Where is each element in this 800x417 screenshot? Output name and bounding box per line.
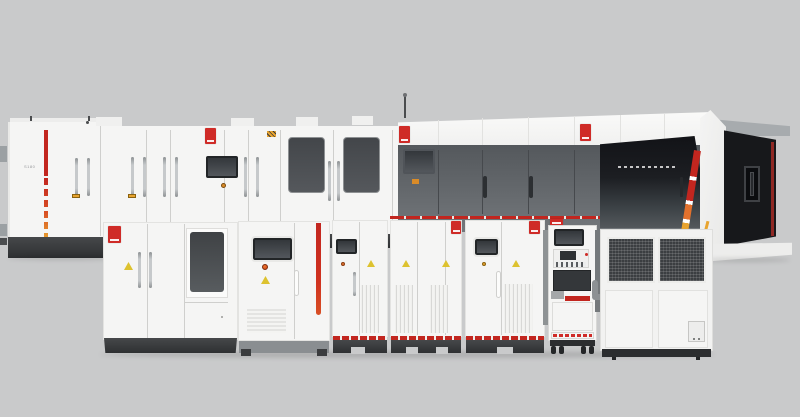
indicator-button [341, 262, 345, 266]
caster-wheel [551, 346, 556, 354]
side-red-glow [771, 142, 774, 236]
vent-grille [247, 309, 286, 333]
roof-vent-block [96, 117, 122, 126]
module-display [560, 251, 576, 260]
machine-top-band [398, 112, 712, 152]
door-gap [147, 224, 148, 338]
front-cabinet-vented-right [390, 220, 462, 360]
cabinet-base [104, 338, 237, 353]
door-handle [175, 157, 178, 197]
base-notch [497, 347, 513, 354]
roof-bolt [86, 121, 89, 124]
band-gap [482, 118, 483, 150]
panel-gap [224, 130, 225, 234]
brand-logo-badge [451, 221, 461, 234]
rack-base [550, 340, 595, 346]
rack-screen [554, 229, 584, 246]
brand-logo-badge [580, 124, 591, 141]
brand-badge-text [552, 222, 561, 224]
brand-stripe-solid [44, 130, 48, 176]
body-gap [438, 150, 439, 214]
vent-slats [361, 285, 379, 333]
door-handle [138, 252, 141, 288]
door-gap [417, 222, 418, 335]
door-handle [143, 157, 146, 197]
cabinet-base [239, 341, 329, 353]
panel-gap [280, 130, 281, 234]
control-screen [206, 156, 238, 178]
offscreen-equipment-fragment [0, 224, 7, 236]
vent-slats [395, 285, 413, 333]
brand-logo-badge [108, 226, 121, 243]
red-label-strip [565, 296, 590, 301]
vent-slats [430, 285, 448, 333]
roof-vent-block [296, 117, 318, 126]
rack-lower-door [552, 302, 593, 331]
cabinet-body [332, 220, 388, 337]
door-handle [256, 157, 259, 197]
door-handle [244, 157, 247, 197]
body-gap [482, 150, 483, 214]
hazard-label [267, 131, 276, 137]
door-gap [359, 222, 360, 335]
door-handle [353, 272, 356, 296]
brand-badge-text [110, 239, 119, 241]
cable-duct [551, 291, 564, 299]
panel-gap [170, 130, 171, 234]
module-red-button [585, 253, 588, 256]
door-handle [163, 157, 166, 197]
panel-gap [146, 130, 147, 234]
red-edge-stripe [316, 223, 321, 315]
rack-bottom-label-text [553, 334, 592, 337]
emergency-button [262, 264, 268, 270]
band-gap [528, 117, 529, 150]
glass-enclosure [600, 136, 710, 228]
roof-bolt [30, 116, 32, 121]
brand-badge-text [401, 139, 409, 141]
condenser-mesh-grille [607, 237, 655, 283]
signal-antenna [404, 96, 406, 118]
machine-roof [712, 110, 790, 136]
side-door-handle [750, 172, 754, 196]
brand-badge-text [582, 137, 590, 139]
machine-control-screen [403, 149, 435, 174]
access-box-dot [693, 338, 695, 340]
door-gap [333, 130, 334, 234]
panel-gap [392, 130, 393, 234]
door-handle [149, 252, 152, 288]
chiller-unit [600, 221, 713, 361]
indicator-button [221, 183, 226, 188]
door-handle [75, 158, 78, 196]
door-gap [184, 224, 185, 338]
hmi-screen [253, 238, 292, 260]
chiller-base [602, 349, 711, 357]
machine-door-handle [483, 176, 487, 198]
amber-label [412, 179, 419, 184]
door-window [343, 137, 380, 193]
base-bolt [612, 357, 616, 360]
offscreen-equipment-fragment [0, 238, 7, 245]
lock-dot [221, 316, 223, 318]
body-gap [574, 150, 575, 214]
door-handle [337, 161, 340, 201]
roof-vent-block [352, 116, 373, 125]
panel-gap [248, 130, 249, 234]
base-notch [351, 347, 365, 354]
inspection-window-glass [190, 232, 224, 292]
access-box [688, 321, 705, 342]
inner-door-handle [680, 177, 683, 197]
side-door-handle-recess [744, 166, 760, 202]
brand-badge-text [453, 230, 460, 232]
vent-slats [504, 284, 533, 333]
caster-wheel [589, 346, 594, 354]
handle-lock-clip [128, 194, 136, 198]
brand-stripe-dashed [44, 178, 48, 240]
condenser-mesh-grille [658, 237, 706, 283]
door-handle [87, 158, 90, 196]
offscreen-equipment-fragment [0, 146, 7, 162]
front-cabinet-vented-small [465, 218, 545, 360]
hmi-screen [336, 239, 357, 254]
floor-shadow [702, 258, 790, 262]
machine-door-handle [529, 176, 533, 198]
body-gap [528, 150, 529, 214]
brand-badge-text [207, 140, 215, 142]
rear-cabinet-row [122, 112, 398, 236]
model-label: S180 [24, 164, 42, 170]
access-box-dot [698, 338, 700, 340]
caster-wheel [581, 346, 586, 354]
connector-row [556, 262, 586, 267]
front-cabinet-control [238, 221, 330, 358]
hmi-screen [475, 239, 498, 255]
antenna-tip [403, 93, 407, 97]
door-gap [100, 126, 101, 236]
door-window [288, 137, 325, 193]
brand-logo-badge [399, 126, 410, 143]
handle-lock-clip [72, 194, 80, 198]
panel-gap [185, 302, 228, 303]
glass-micro-text [618, 166, 678, 168]
door-handle [131, 157, 134, 197]
machine-dark-side-panel [724, 128, 776, 246]
front-cabinet-window [103, 222, 238, 355]
front-cabinet-vented-left [332, 220, 388, 360]
base-notch [436, 347, 448, 354]
base-foot [317, 349, 327, 356]
band-gap [438, 120, 439, 150]
brand-logo-badge [205, 128, 216, 144]
chiller-lower-panel [605, 290, 653, 348]
door-handle [294, 270, 299, 296]
cabinet-body [8, 122, 122, 237]
indicator-button [482, 262, 486, 266]
band-gap [620, 115, 621, 148]
base-bolt [696, 357, 700, 360]
base-foot [241, 349, 251, 356]
caster-wheel [559, 346, 564, 354]
band-gap [664, 114, 665, 146]
instrument-rack [548, 219, 597, 359]
door-handle [496, 271, 501, 298]
door-handle [328, 161, 331, 201]
base-notch [406, 347, 418, 354]
door-gap [501, 222, 502, 335]
brand-logo-badge [529, 221, 540, 234]
equipment-lineup-scene: S180 [0, 0, 800, 417]
brand-badge-text [531, 230, 539, 232]
cabinet-base [391, 340, 461, 353]
rack-dark-panel [553, 270, 591, 291]
band-gap [574, 116, 575, 150]
